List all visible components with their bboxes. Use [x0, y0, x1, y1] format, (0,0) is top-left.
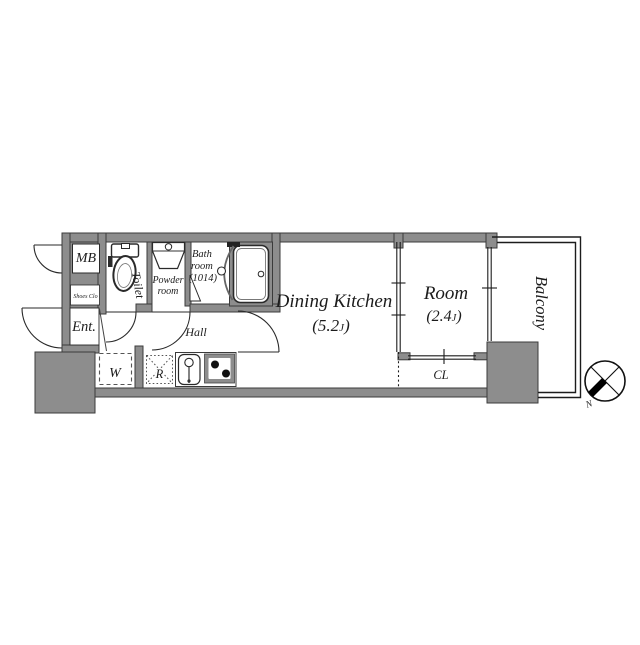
bath-room-label-3: (1014)	[189, 273, 217, 284]
entrance-step-line	[100, 309, 107, 351]
entrance-label: Ent.	[71, 319, 96, 335]
mb-label: MB	[75, 251, 97, 266]
powder-room-label-1: Powder	[151, 275, 183, 286]
closet-sliding-door	[408, 349, 476, 364]
wall-waterarea-bottom-1	[136, 304, 152, 312]
dk-door-arc	[238, 311, 279, 352]
room-size: (2.4J)	[426, 308, 461, 325]
hall-label: Hall	[184, 325, 207, 339]
washer-label: W	[109, 366, 122, 381]
fixtures	[100, 242, 269, 387]
wall-stub-partition-top	[394, 233, 403, 248]
bath-room-label-2: room	[191, 261, 213, 272]
toilet-door-arc	[106, 312, 136, 342]
powder-door-arc	[152, 312, 190, 350]
wall-stub-kitchen	[135, 346, 143, 388]
room-label: Room	[423, 283, 468, 304]
shoes-closet-label: Shoes Clo	[73, 294, 97, 300]
stove	[205, 354, 235, 383]
bathtub	[227, 242, 269, 303]
bath-room-label-1: Bath	[192, 249, 212, 260]
wall-bottom	[95, 388, 492, 397]
mb-door-arc	[34, 245, 62, 273]
balcony-window	[482, 247, 497, 341]
kitchen-counter	[176, 353, 237, 387]
kitchen-sink	[179, 355, 201, 385]
toilet-label: Toilet	[129, 271, 148, 301]
pillar-block-right	[487, 342, 538, 403]
vanity-fixture	[153, 243, 185, 269]
dining-kitchen-label: Dining Kitchen	[275, 291, 393, 312]
floor-plan-page: N MB Shoes Clo Ent. Toilet Powder room B…	[0, 0, 640, 640]
closet-label: CL	[433, 368, 448, 382]
fridge-label: R	[155, 367, 164, 381]
wall-stub-window-top	[486, 233, 497, 248]
wall-left	[62, 233, 70, 353]
compass: N	[584, 361, 625, 411]
balcony-label: Balcony	[532, 276, 551, 331]
dining-kitchen-size: (5.2J)	[312, 316, 350, 335]
powder-room-label-2: room	[158, 286, 179, 297]
pillar-block-left	[35, 352, 95, 413]
entrance-door-arc	[22, 308, 62, 348]
dk-room-sliding-partition	[392, 242, 406, 388]
north-label: N	[584, 399, 595, 411]
floor-plan-svg: N MB Shoes Clo Ent. Toilet Powder room B…	[0, 0, 640, 640]
